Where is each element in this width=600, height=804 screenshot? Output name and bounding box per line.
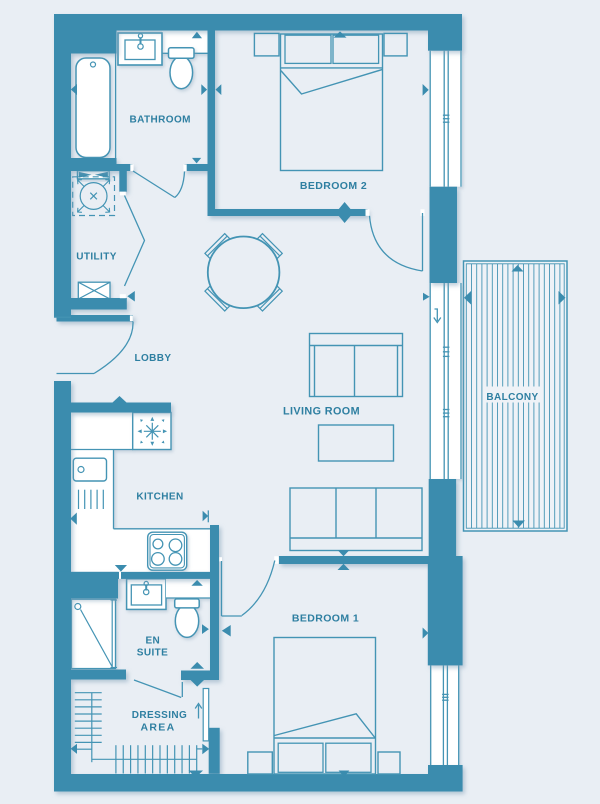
svg-text:EN: EN — [145, 636, 160, 647]
svg-text:BALCONY: BALCONY — [486, 392, 538, 403]
svg-text:LOBBY: LOBBY — [135, 353, 172, 364]
svg-text:KITCHEN: KITCHEN — [136, 492, 183, 503]
svg-text:SUITE: SUITE — [137, 648, 168, 659]
svg-text:DRESSING: DRESSING — [132, 710, 187, 721]
svg-text:LIVING ROOM: LIVING ROOM — [283, 405, 360, 417]
svg-text:AREA: AREA — [141, 721, 176, 733]
svg-text:BATHROOM: BATHROOM — [130, 115, 191, 126]
svg-text:BEDROOM 2: BEDROOM 2 — [300, 180, 367, 192]
svg-text:UTILITY: UTILITY — [76, 252, 117, 263]
svg-text:BEDROOM 1: BEDROOM 1 — [292, 612, 359, 624]
